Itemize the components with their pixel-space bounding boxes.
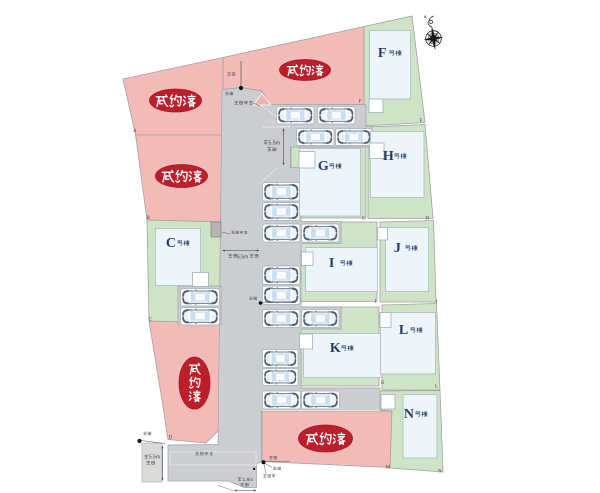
svg-text:G: G bbox=[318, 159, 329, 174]
svg-text:L: L bbox=[435, 385, 438, 390]
svg-text:K: K bbox=[330, 341, 341, 356]
svg-text:C: C bbox=[166, 236, 176, 251]
svg-text:M: M bbox=[386, 466, 391, 471]
svg-text:G: G bbox=[362, 217, 366, 222]
svg-text:D: D bbox=[169, 436, 173, 441]
svg-text:N: N bbox=[404, 407, 414, 422]
svg-text:F: F bbox=[378, 46, 387, 61]
svg-text:J: J bbox=[436, 300, 438, 305]
svg-text:K: K bbox=[381, 381, 385, 386]
svg-text:5.5m: 5.5m bbox=[269, 141, 281, 147]
svg-text:H: H bbox=[426, 217, 430, 222]
svg-text:A: A bbox=[133, 129, 137, 134]
svg-text:I: I bbox=[329, 256, 334, 271]
svg-text:1.8m: 1.8m bbox=[243, 477, 254, 483]
svg-text:J: J bbox=[394, 241, 401, 256]
svg-text:F: F bbox=[359, 100, 362, 105]
svg-text:5.5m: 5.5m bbox=[237, 255, 248, 261]
svg-text:H: H bbox=[383, 149, 394, 164]
svg-text:N: N bbox=[438, 470, 442, 475]
svg-text:F: F bbox=[420, 119, 423, 124]
svg-text:L: L bbox=[399, 323, 408, 338]
svg-text:5.5m: 5.5m bbox=[149, 455, 160, 461]
